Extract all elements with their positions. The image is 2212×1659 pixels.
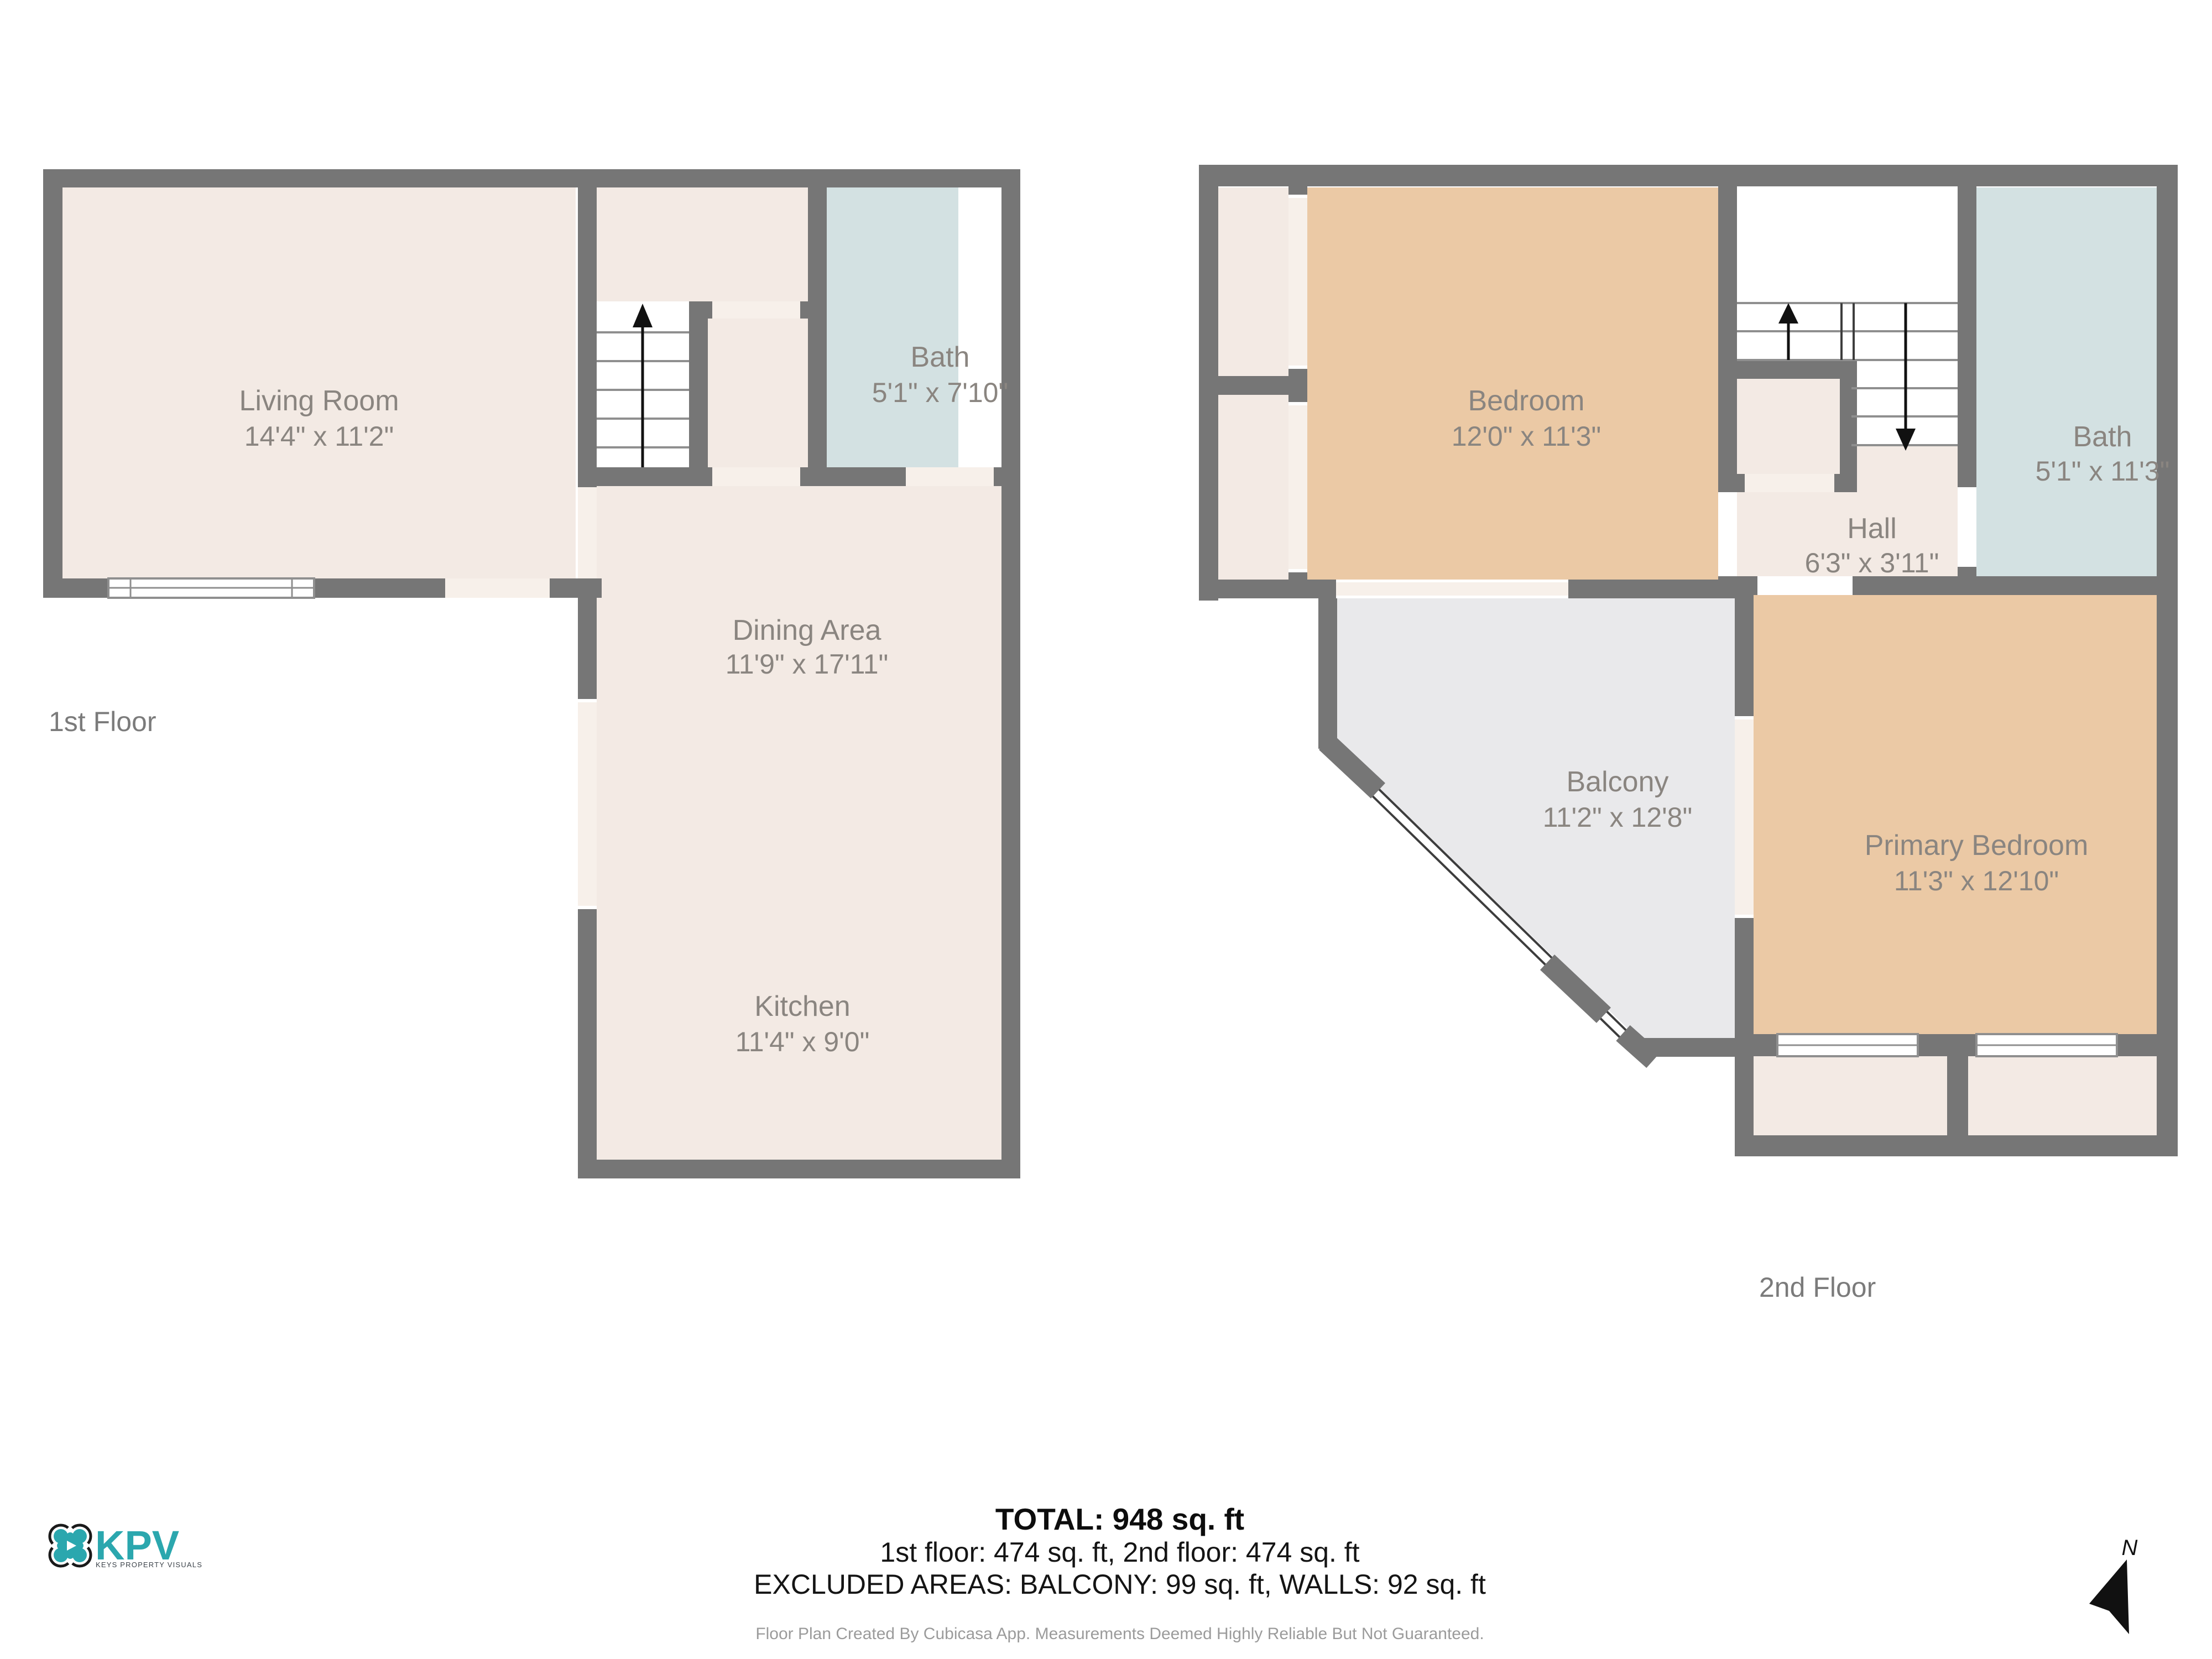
bath-door-f2 [1958,487,1976,567]
dining-kitchen-area [597,486,1001,1160]
stairwell-landing [1737,187,1958,303]
bath-door-f1 [906,467,994,486]
dining-dims: 11'9" x 17'11" [726,649,889,680]
bath-f1-label: Bath [911,341,970,373]
second-floor-label: 2nd Floor [1759,1272,1876,1303]
primary-bedroom-door [1757,576,1853,595]
bottom-closet-left [1754,1056,1947,1135]
primary-bedroom-dims: 11'3" x 12'10" [1894,865,2059,896]
primary-bedroom-label: Primary Bedroom [1865,830,2089,862]
dining-label: Dining Area [733,614,881,646]
hall-dims: 6'3" x 3'11" [1805,547,1939,578]
footer-summary: TOTAL: 948 sq. ft 1st floor: 474 sq. ft,… [754,1502,1486,1643]
floor-plan-canvas: Living Room 14'4" x 11'2" Bath 5'1" x 7'… [0,0,2212,1659]
bedroom-hall-door [1718,492,1737,576]
living-dining-opening [578,487,597,578]
window-icon [1777,1034,1918,1056]
bedroom-area [1307,187,1718,580]
primary-bedroom-area [1754,595,2157,1034]
bedroom-dims: 12'0" x 11'3" [1452,421,1601,452]
entry-door-opening [445,578,550,598]
balcony-label: Balcony [1567,766,1669,798]
kpv-logo: KPV KEYS PROPERTY VISUALS [45,1521,202,1571]
hall-label: Hall [1847,513,1897,545]
excluded-areas-text: EXCLUDED AREAS: BALCONY: 99 sq. ft, WALL… [754,1569,1486,1600]
kpv-drone-icon [45,1521,95,1571]
entry-hall-area [597,187,808,301]
living-room-area [62,187,576,578]
balcony-door-opening [1336,580,1568,598]
vestibule-area [1737,379,1840,474]
floor-areas-text: 1st floor: 474 sq. ft, 2nd floor: 474 sq… [880,1537,1359,1568]
living-room-dims: 14'4" x 11'2" [244,421,394,452]
balcony-dims: 11'2" x 12'8" [1543,802,1693,833]
disclaimer-text: Floor Plan Created By Cubicasa App. Meas… [755,1625,1484,1643]
first-floor-label: 1st Floor [49,706,156,737]
bath-f2-dims: 5'1" x 11'3" [2036,456,2170,487]
bath-area-f1 [827,187,958,467]
bath-area-f2 [1976,187,2157,576]
bottom-closet-right [1968,1056,2157,1135]
bedroom-label: Bedroom [1468,385,1585,417]
north-arrow-icon: N [2089,1536,2138,1634]
brand-tagline: KEYS PROPERTY VISUALS [96,1561,202,1569]
bath-f1-dims: 5'1" x 7'10" [872,377,1008,408]
closet2-area-f2 [1218,395,1288,580]
vestibule-door [1745,474,1834,492]
kitchen-dims: 11'4" x 9'0" [735,1026,870,1057]
primary-balcony-window [1735,716,1754,918]
window-icon [108,578,314,598]
living-room-label: Living Room [239,385,399,417]
total-area-text: TOTAL: 948 sq. ft [995,1502,1244,1536]
closet1-area-f2 [1218,187,1288,376]
closet-door-bottom [712,467,800,486]
closet-door-top [712,301,800,319]
closet2-door [1288,402,1307,572]
kitchen-label: Kitchen [754,990,850,1022]
closet1-door [1288,195,1307,369]
window-icon [1976,1034,2117,1056]
floor-plan-first-floor: Living Room 14'4" x 11'2" Bath 5'1" x 7'… [43,169,1020,1178]
bath-f2-label: Bath [2073,421,2132,453]
floor-plan-second-floor: Bedroom 12'0" x 11'3" Bath 5'1" x 11'3" … [1199,165,2178,1303]
closet-area-f1 [708,319,808,467]
dining-window-opening [578,699,597,909]
north-label: N [2122,1536,2138,1560]
